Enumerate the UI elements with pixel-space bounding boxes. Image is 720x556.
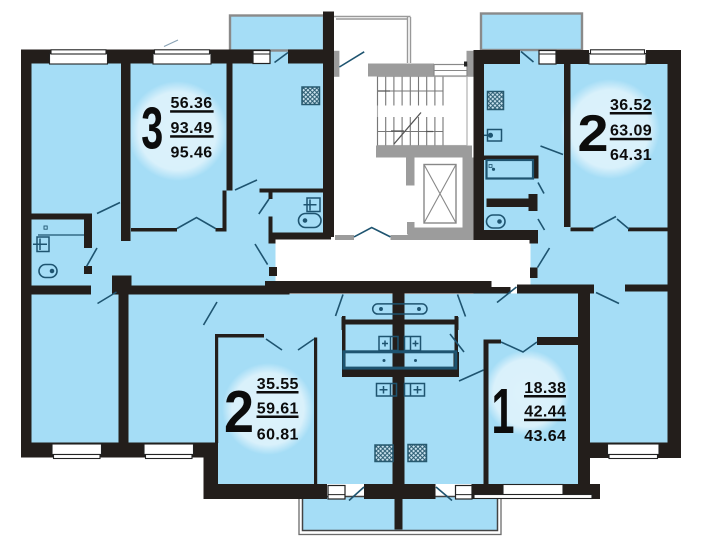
svg-text:60.81: 60.81	[257, 427, 299, 444]
svg-text:18.38: 18.38	[524, 380, 566, 397]
svg-text:64.31: 64.31	[610, 147, 652, 164]
svg-text:36.52: 36.52	[610, 97, 652, 114]
svg-text:43.64: 43.64	[524, 428, 566, 445]
svg-text:3: 3	[141, 96, 163, 162]
svg-text:63.09: 63.09	[610, 123, 652, 140]
svg-text:59.61: 59.61	[257, 401, 299, 418]
svg-text:95.46: 95.46	[171, 145, 213, 162]
svg-text:42.44: 42.44	[524, 404, 566, 421]
svg-text:35.55: 35.55	[257, 376, 299, 393]
svg-text:2: 2	[224, 379, 254, 445]
svg-text:56.36: 56.36	[171, 95, 213, 112]
svg-text:2: 2	[578, 105, 609, 163]
svg-text:93.49: 93.49	[171, 120, 213, 137]
svg-text:1: 1	[492, 375, 515, 447]
